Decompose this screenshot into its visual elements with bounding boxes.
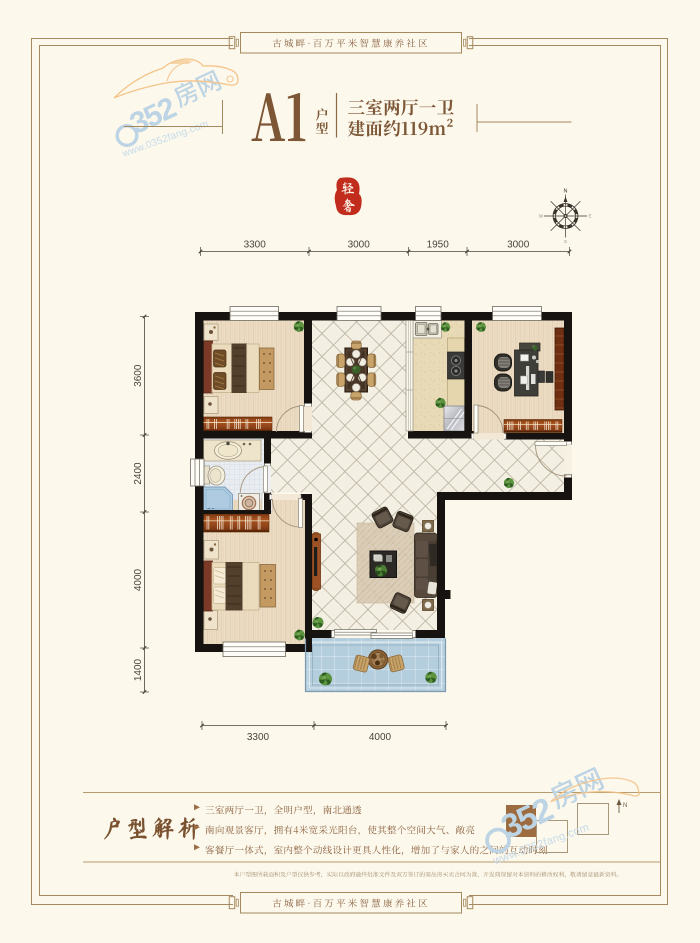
svg-text:S: S <box>564 239 567 244</box>
svg-text:4000: 4000 <box>133 568 144 591</box>
svg-text:1400: 1400 <box>133 658 144 681</box>
svg-text:W: W <box>539 214 544 219</box>
svg-text:N: N <box>623 803 627 809</box>
svg-text:1950: 1950 <box>427 240 450 251</box>
svg-text:3000: 3000 <box>348 240 371 251</box>
svg-text:3300: 3300 <box>244 240 267 251</box>
svg-text:N: N <box>564 189 568 195</box>
svg-text:E: E <box>588 214 591 219</box>
svg-text:3300: 3300 <box>247 732 270 743</box>
svg-text:3000: 3000 <box>507 240 530 251</box>
svg-text:4000: 4000 <box>369 732 392 743</box>
svg-text:2400: 2400 <box>133 462 144 485</box>
svg-text:3600: 3600 <box>133 364 144 387</box>
